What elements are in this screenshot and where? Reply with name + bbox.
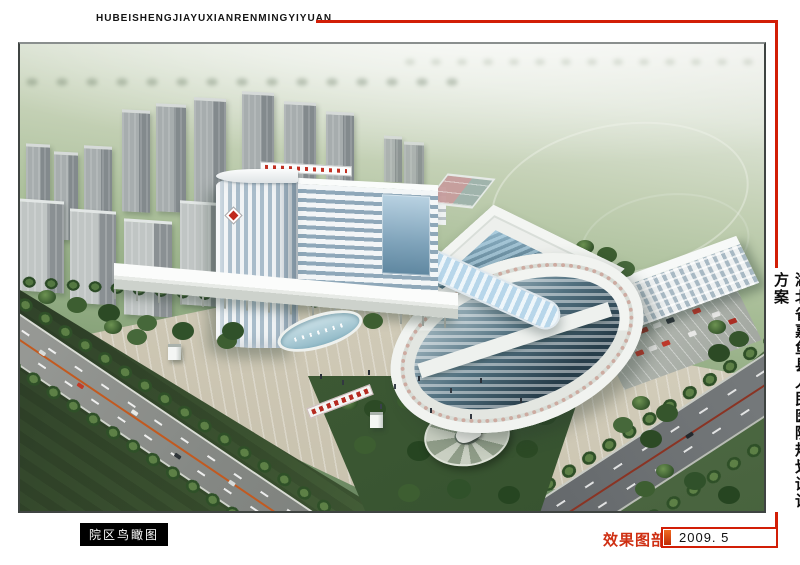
presentation-sheet: HUBEISHENGJIAYUXIANRENMINGYIYUAN [0, 0, 800, 565]
top-red-rule [316, 20, 778, 23]
tree-clump [38, 290, 56, 304]
city-building [384, 136, 402, 183]
pedestrians [320, 374, 322, 379]
distant-treeline [400, 56, 766, 68]
distant-treeline [20, 74, 460, 88]
hospital-tower [216, 176, 298, 348]
date-accent-bar [664, 530, 671, 545]
date-box: 2009. 5 [661, 527, 778, 548]
tree-clump [656, 464, 674, 478]
city-building [122, 109, 150, 212]
right-red-rule-upper [775, 20, 778, 268]
tree-clump [632, 396, 650, 410]
project-title-vertical: 湖北省嘉鱼县人民医院规划设计方案 [770, 272, 800, 516]
gatehouse [370, 412, 383, 428]
view-caption: 院区鸟瞰图 [80, 523, 168, 546]
gatehouse [168, 344, 181, 360]
tree-clump [104, 320, 122, 334]
tower-roof [216, 169, 298, 183]
city-building [404, 141, 424, 188]
date: 2009. 5 [679, 530, 729, 545]
city-building [156, 103, 186, 213]
tree-clump [708, 320, 726, 334]
pinyin-title: HUBEISHENGJIAYUXIANRENMINGYIYUAN [96, 13, 332, 24]
car [685, 431, 694, 439]
cars [38, 349, 46, 356]
aerial-rendering [18, 42, 766, 513]
